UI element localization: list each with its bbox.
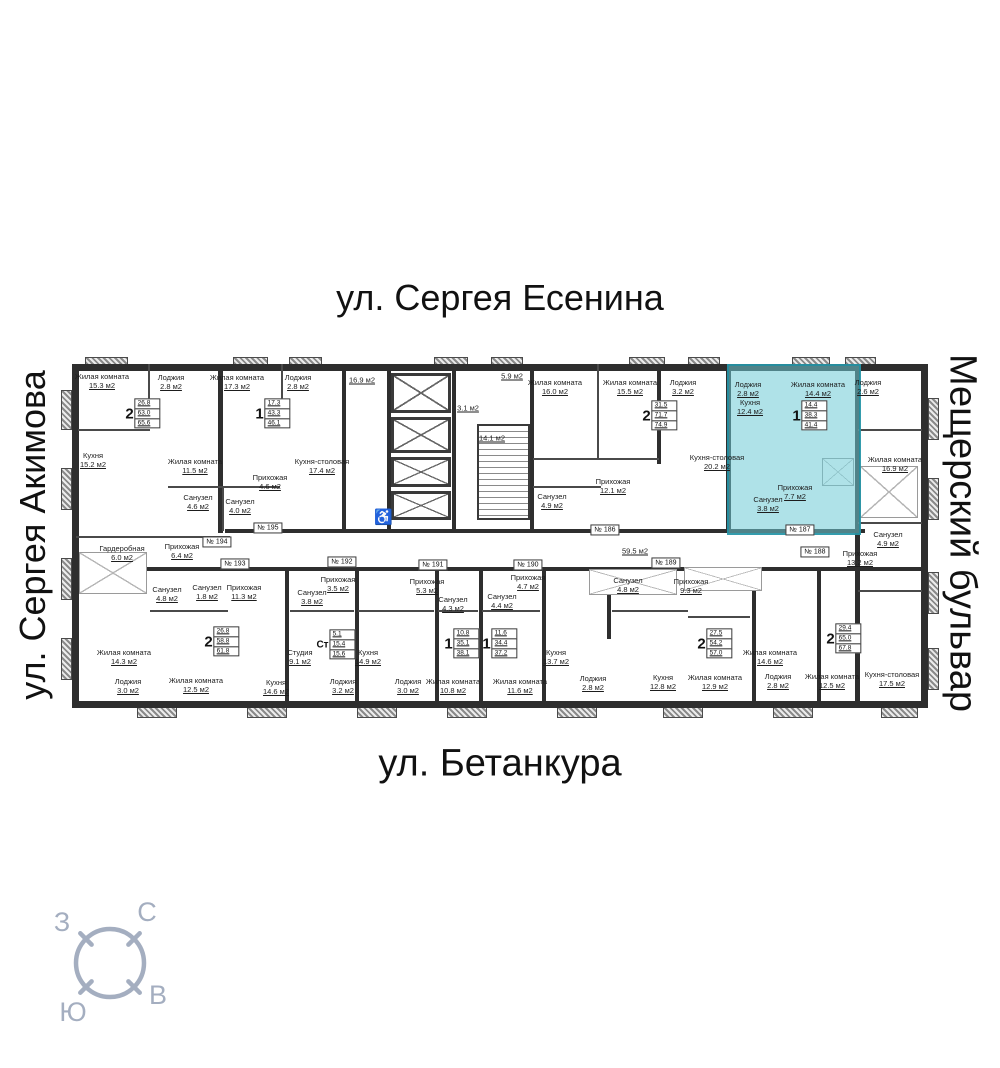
facade-ledge	[773, 707, 813, 718]
room-label: Прихожая5.3 м2	[410, 577, 445, 595]
partition-wall	[533, 458, 659, 460]
apartment-number-plate: № 188	[800, 546, 829, 557]
facade-ledge	[663, 707, 703, 718]
room-label: Гардеробная6.0 м2	[99, 544, 144, 562]
apartment-info: 227.554.257.0	[697, 629, 732, 658]
apartment-number-plate: № 186	[590, 524, 619, 535]
storage-area	[860, 466, 918, 518]
street-name-right: Мещерский бульвар	[941, 354, 984, 712]
room-label: Лоджия2.8 м2	[285, 373, 312, 391]
elevator-shaft	[391, 373, 451, 413]
room-label: Кухня14.6 м2	[263, 678, 289, 696]
room-label: Санузел4.8 м2	[613, 576, 642, 594]
apartment-info: 111.634.437.2	[482, 629, 517, 658]
room-label: Прихожая12.1 м2	[596, 477, 631, 495]
facade-ledge	[137, 707, 177, 718]
apartment-info: 229.465.067.8	[826, 624, 861, 653]
compass-south-label: Ю	[59, 997, 86, 1027]
facade-ledge	[928, 478, 939, 520]
apartment-info: Ст5.115.415.6	[316, 630, 355, 659]
apartment-number-plate: № 193	[220, 558, 249, 569]
street-name-top: ул. Сергея Есенина	[336, 277, 664, 319]
wall	[342, 364, 346, 533]
room-label: Жилая комната12.5 м2	[169, 676, 223, 694]
facade-ledge	[557, 707, 597, 718]
room-label: Жилая комната15.3 м2	[75, 372, 129, 390]
apartment-number-plate: № 194	[202, 536, 231, 547]
room-label: Жилая комната12.5 м2	[805, 672, 859, 690]
room-label: Жилая комната12.9 м2	[688, 673, 742, 691]
room-label: Кухня13.7 м2	[543, 648, 569, 666]
facade-ledge	[928, 572, 939, 614]
room-label: Жилая комната16.9 м2	[868, 455, 922, 473]
partition-wall	[858, 522, 922, 524]
room-label: Санузел4.9 м2	[537, 492, 566, 510]
room-label: Прихожая7.7 м2	[778, 483, 813, 501]
partition-wall	[858, 590, 922, 592]
facade-ledge	[928, 398, 939, 440]
room-label: Прихожая6.4 м2	[165, 542, 200, 560]
facade-ledge	[881, 707, 918, 718]
room-label: Санузел4.6 м2	[183, 493, 212, 511]
room-label: Санузел4.9 м2	[873, 530, 902, 548]
room-label: Лоджия2.8 м2	[765, 672, 792, 690]
room-label: Жилая комната16.0 м2	[528, 378, 582, 396]
apartment-number-plate: № 189	[651, 557, 680, 568]
room-label: 16.9 м2	[349, 376, 375, 385]
room-label: Кухня-столовая20.2 м2	[690, 453, 744, 471]
partition-wall	[290, 610, 354, 612]
room-label: Кухня12.8 м2	[650, 673, 676, 691]
facade-ledge	[447, 707, 487, 718]
partition-wall	[222, 486, 224, 531]
apartment-info: 231.571.774.9	[642, 401, 677, 430]
room-label: 5.9 м2	[501, 372, 523, 381]
facade-ledge	[928, 648, 939, 690]
room-label: Студия9.1 м2	[287, 648, 312, 666]
apartment-info: 114.438.341.4	[792, 401, 827, 430]
compass-north-label: С	[137, 897, 157, 927]
facade-ledge	[61, 468, 72, 510]
apartment-info: 110.835.138.1	[444, 629, 479, 658]
room-label: Лоджия3.0 м2	[115, 677, 142, 695]
wall	[72, 701, 928, 708]
apartment-info: 117.343.346.1	[255, 399, 290, 428]
facade-ledge	[247, 707, 287, 718]
room-label: Лоджия2.8 м2	[735, 380, 762, 398]
room-label: Кухня14.9 м2	[355, 648, 381, 666]
room-label: 14.1 м2	[479, 434, 505, 443]
room-label: Прихожая4.7 м2	[511, 573, 546, 591]
room-label: Жилая комната17.3 м2	[210, 373, 264, 391]
elevator-shaft	[391, 457, 451, 487]
floor-plan-page: ул. Сергея Есенина ул. Бетанкура ул. Сер…	[0, 0, 1000, 1068]
room-label: Санузел4.8 м2	[152, 585, 181, 603]
room-label: Жилая комната14.6 м2	[743, 648, 797, 666]
partition-wall	[533, 486, 601, 488]
room-label: Жилая комната15.5 м2	[603, 378, 657, 396]
wall	[921, 364, 928, 708]
room-label: Санузел4.0 м2	[225, 497, 254, 515]
compass-rose: З С В Ю	[35, 885, 185, 1045]
room-label: Прихожая11.3 м2	[227, 583, 262, 601]
partition-wall	[597, 364, 599, 460]
street-name-left: ул. Сергея Акимова	[12, 370, 54, 700]
room-label: Жилая комната11.6 м2	[493, 677, 547, 695]
compass-west-label: З	[54, 907, 70, 937]
partition-wall	[688, 616, 750, 618]
room-label: Кухня15.2 м2	[80, 451, 106, 469]
partition-wall	[482, 610, 540, 612]
room-label: Лоджия3.0 м2	[395, 677, 422, 695]
room-label: Жилая комната14.3 м2	[97, 648, 151, 666]
partition-wall	[358, 610, 434, 612]
room-label: Жилая комната11.5 м2	[168, 457, 222, 475]
apartment-number-plate: № 190	[513, 559, 542, 570]
wheelchair-accessibility-icon: ♿	[374, 508, 393, 526]
room-label: Кухня-столовая17.5 м2	[865, 670, 919, 688]
apartment-info: 226.863.065.6	[125, 399, 160, 428]
facade-ledge	[61, 558, 72, 600]
room-label: Жилая комната14.4 м2	[791, 380, 845, 398]
room-label: Жилая комната10.8 м2	[426, 677, 480, 695]
room-label: Прихожая4.6 м2	[253, 473, 288, 491]
apartment-number-plate: № 187	[785, 524, 814, 535]
partition-wall	[612, 610, 688, 612]
room-label: Прихожая9.3 м2	[674, 577, 709, 595]
room-label: Прихожая3.5 м2	[321, 575, 356, 593]
compass-east-label: В	[149, 980, 167, 1010]
street-name-bottom: ул. Бетанкура	[378, 743, 621, 786]
room-label: Прихожая13.2 м2	[843, 549, 878, 567]
facade-ledge	[357, 707, 397, 718]
apartment-info: 226.858.861.8	[204, 627, 239, 656]
elevator-shaft	[391, 417, 451, 453]
room-label: Кухня-столовая17.4 м2	[295, 457, 349, 475]
facade-ledge	[61, 390, 72, 430]
compass-ticks	[80, 933, 139, 992]
room-label: Санузел3.8 м2	[753, 495, 782, 513]
room-label: Лоджия2.6 м2	[855, 378, 882, 396]
partition-wall	[78, 429, 150, 431]
room-label: 59.5 м2	[622, 547, 648, 556]
partition-wall	[858, 429, 922, 431]
wall	[452, 368, 456, 533]
room-label: Санузел4.4 м2	[487, 592, 516, 610]
apartment-number-plate: № 192	[327, 556, 356, 567]
room-label: Кухня12.4 м2	[737, 398, 763, 416]
room-label: Лоджия3.2 м2	[330, 677, 357, 695]
wall	[72, 567, 928, 571]
room-label: Лоджия2.8 м2	[158, 373, 185, 391]
room-label: Санузел4.3 м2	[438, 595, 467, 613]
room-label: 3.1 м2	[457, 404, 479, 413]
apartment-number-plate: № 191	[418, 559, 447, 570]
room-label: Лоджия2.8 м2	[580, 674, 607, 692]
elevator-shaft	[391, 491, 451, 520]
apartment-number-plate: № 195	[253, 522, 282, 533]
room-label: Санузел1.8 м2	[192, 583, 221, 601]
partition-wall	[150, 610, 228, 612]
facade-ledge	[61, 638, 72, 680]
room-label: Лоджия3.2 м2	[670, 378, 697, 396]
